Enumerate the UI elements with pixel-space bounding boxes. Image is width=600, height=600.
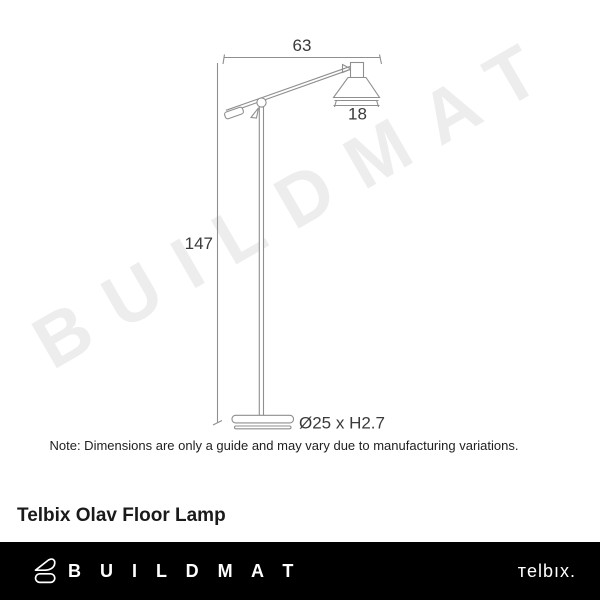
telbix-logo: тelbıx. [518,561,576,582]
buildmat-logo-icon [33,557,58,585]
dim-tick-63-right [380,55,382,65]
dim-tick-63-left [223,55,225,65]
dimension-height: 147 [185,63,222,425]
arm-clamp [251,108,259,118]
dim-label-base: Ø25 x H2.7 [299,414,385,433]
dimension-shade-width: 18 [334,100,380,124]
footer-bar: B U I L D M A T тelbıx. [0,542,600,600]
floor-lamp-dimension-drawing: 63 147 18 [0,0,600,465]
dimension-arm-width: 63 [223,36,382,64]
buildmat-wordmark: B U I L D M A T [68,561,300,582]
base-disc [232,415,294,423]
product-title: Telbix Olav Floor Lamp [17,505,226,527]
base-bottom-edge [235,426,292,429]
pivot-joint [257,98,266,107]
lamp-head [334,63,380,101]
arm-lower-line [227,69,351,113]
buildmat-brand: B U I L D M A T [33,557,300,585]
lamp-socket [351,63,364,78]
dim-label-147: 147 [185,234,213,253]
dimension-disclaimer-note: Note: Dimensions are only a guide and ma… [0,438,568,453]
lamp-arm [224,65,351,120]
lamp-shade [334,78,380,98]
arm-upper-line [226,66,351,110]
dim-label-18: 18 [348,105,367,124]
product-image-canvas: BUILDMAT 63 147 [0,0,600,600]
dim-label-63: 63 [293,36,312,55]
arm-counterweight-handle [224,107,244,120]
lamp-base: Ø25 x H2.7 [232,414,385,433]
lamp-pole [259,106,263,416]
